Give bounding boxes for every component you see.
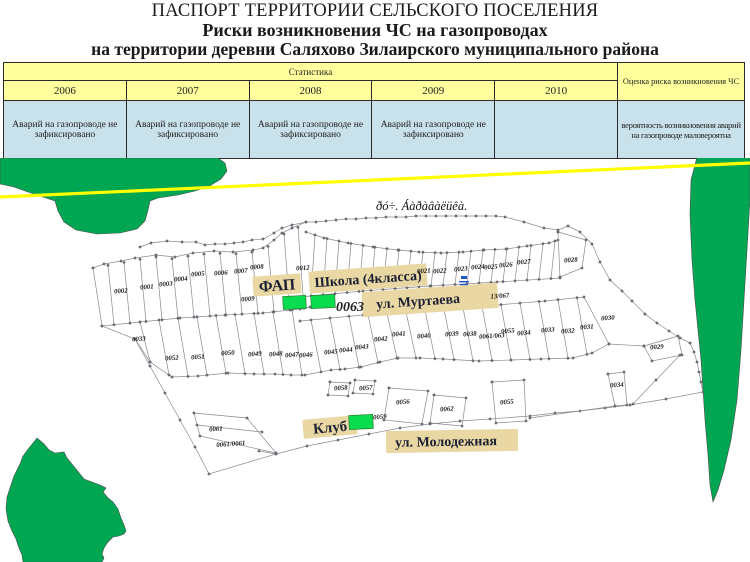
svg-text:0055: 0055: [501, 327, 516, 335]
svg-text:0031: 0031: [580, 324, 594, 332]
svg-text:0059: 0059: [373, 413, 388, 421]
svg-text:0001: 0001: [140, 284, 154, 292]
svg-text:0006: 0006: [214, 269, 229, 277]
svg-text:0033: 0033: [132, 335, 147, 343]
svg-text:0041: 0041: [392, 331, 406, 339]
svg-text:0048: 0048: [269, 350, 284, 358]
svg-text:0055: 0055: [500, 398, 515, 406]
svg-text:0005: 0005: [191, 270, 206, 278]
svg-text:0012: 0012: [296, 264, 311, 272]
svg-text:0008: 0008: [250, 263, 265, 271]
svg-text:0042: 0042: [374, 335, 389, 343]
svg-text:0038: 0038: [463, 330, 478, 338]
svg-text:0034: 0034: [517, 329, 532, 337]
svg-text:0061/0061: 0061/0061: [216, 440, 245, 449]
svg-text:0058: 0058: [334, 384, 349, 392]
svg-text:0002: 0002: [114, 287, 129, 295]
svg-text:0061: 0061: [209, 426, 223, 434]
svg-text:0040: 0040: [417, 332, 432, 340]
svg-text:0046: 0046: [299, 351, 314, 359]
svg-text:0043: 0043: [355, 343, 370, 351]
svg-text:0057: 0057: [359, 384, 374, 392]
svg-text:0052: 0052: [165, 354, 180, 362]
svg-text:0047: 0047: [285, 351, 300, 359]
svg-text:0039: 0039: [445, 330, 460, 338]
svg-text:0056: 0056: [396, 398, 411, 406]
svg-text:Клуб: Клуб: [312, 419, 347, 438]
svg-text:0027: 0027: [517, 258, 532, 266]
svg-text:0063: 0063: [336, 300, 364, 315]
svg-text:0022: 0022: [433, 267, 448, 275]
svg-text:0023: 0023: [454, 265, 469, 273]
svg-text:0004: 0004: [174, 275, 189, 283]
svg-text:0007: 0007: [234, 267, 249, 275]
svg-text:0045: 0045: [324, 348, 339, 356]
svg-text:0028: 0028: [564, 256, 579, 264]
svg-text:0030: 0030: [601, 314, 616, 322]
svg-text:ул. Молодежная: ул. Молодежная: [395, 434, 498, 451]
svg-text:0025: 0025: [484, 263, 499, 271]
svg-text:0051: 0051: [191, 354, 205, 362]
svg-text:0044: 0044: [339, 346, 354, 354]
svg-text:13/067: 13/067: [490, 292, 510, 300]
svg-text:0009: 0009: [241, 295, 256, 303]
svg-text:0026: 0026: [499, 261, 514, 269]
svg-text:0029: 0029: [650, 343, 665, 351]
svg-text:0003: 0003: [159, 280, 174, 288]
svg-text:0021: 0021: [417, 268, 431, 276]
svg-text:0049: 0049: [248, 350, 263, 358]
svg-text:0033: 0033: [541, 326, 556, 334]
svg-text:0032: 0032: [561, 327, 576, 335]
svg-text:ðó÷. Áàðàâàëüêà.: ðó÷. Áàðàâàëüêà.: [376, 199, 467, 213]
svg-text:0062: 0062: [440, 405, 455, 413]
svg-text:0034: 0034: [610, 381, 625, 389]
svg-text:0050: 0050: [221, 349, 236, 357]
svg-text:ФАП: ФАП: [258, 276, 296, 296]
